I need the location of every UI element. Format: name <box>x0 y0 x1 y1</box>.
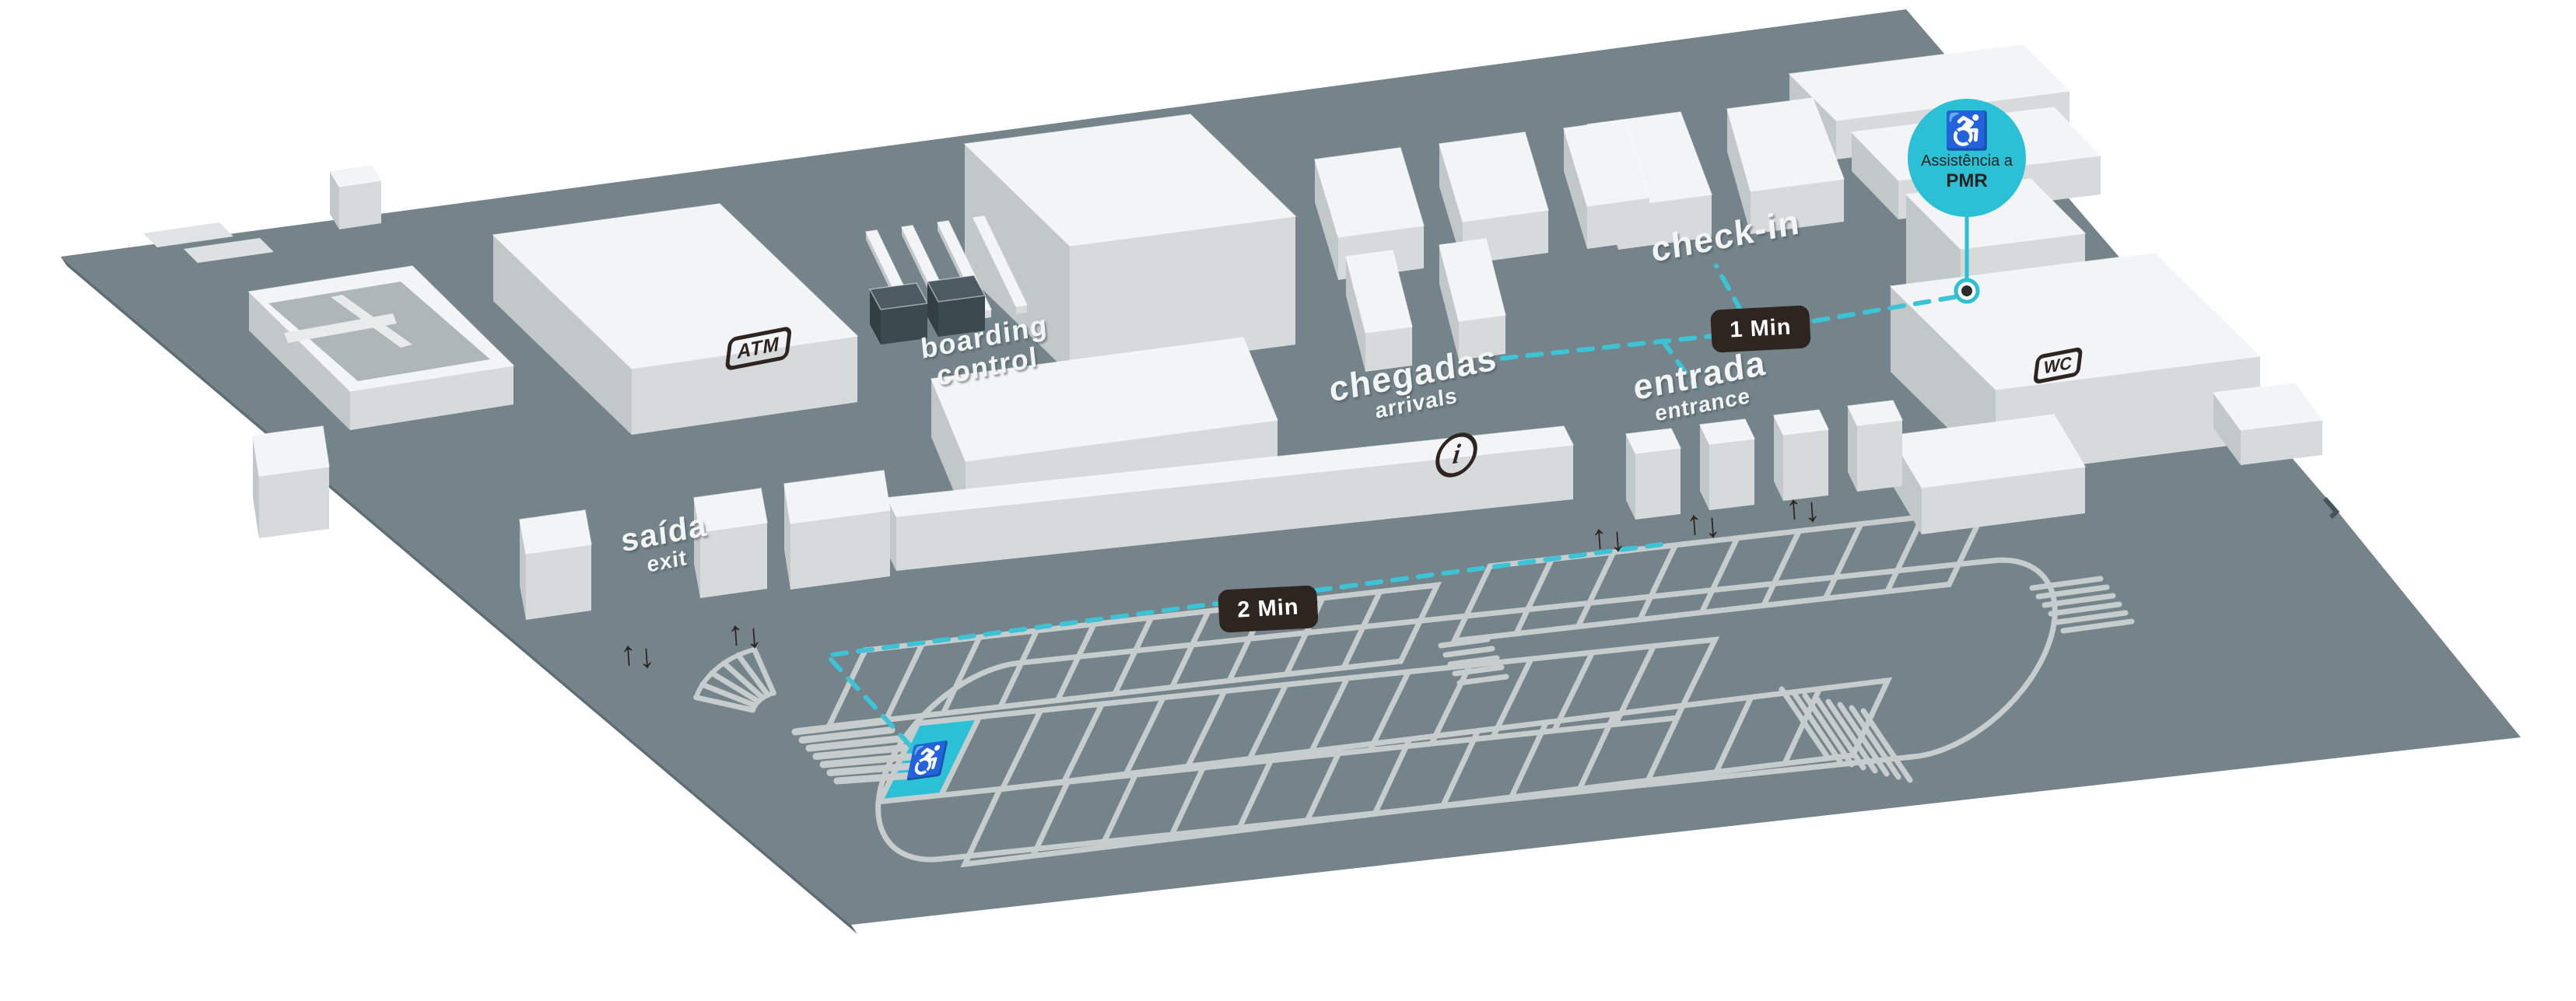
airport-terminal-isometric-map: saída exit boarding control chegadas arr… <box>0 0 2576 1001</box>
map-canvas <box>0 0 2576 1001</box>
